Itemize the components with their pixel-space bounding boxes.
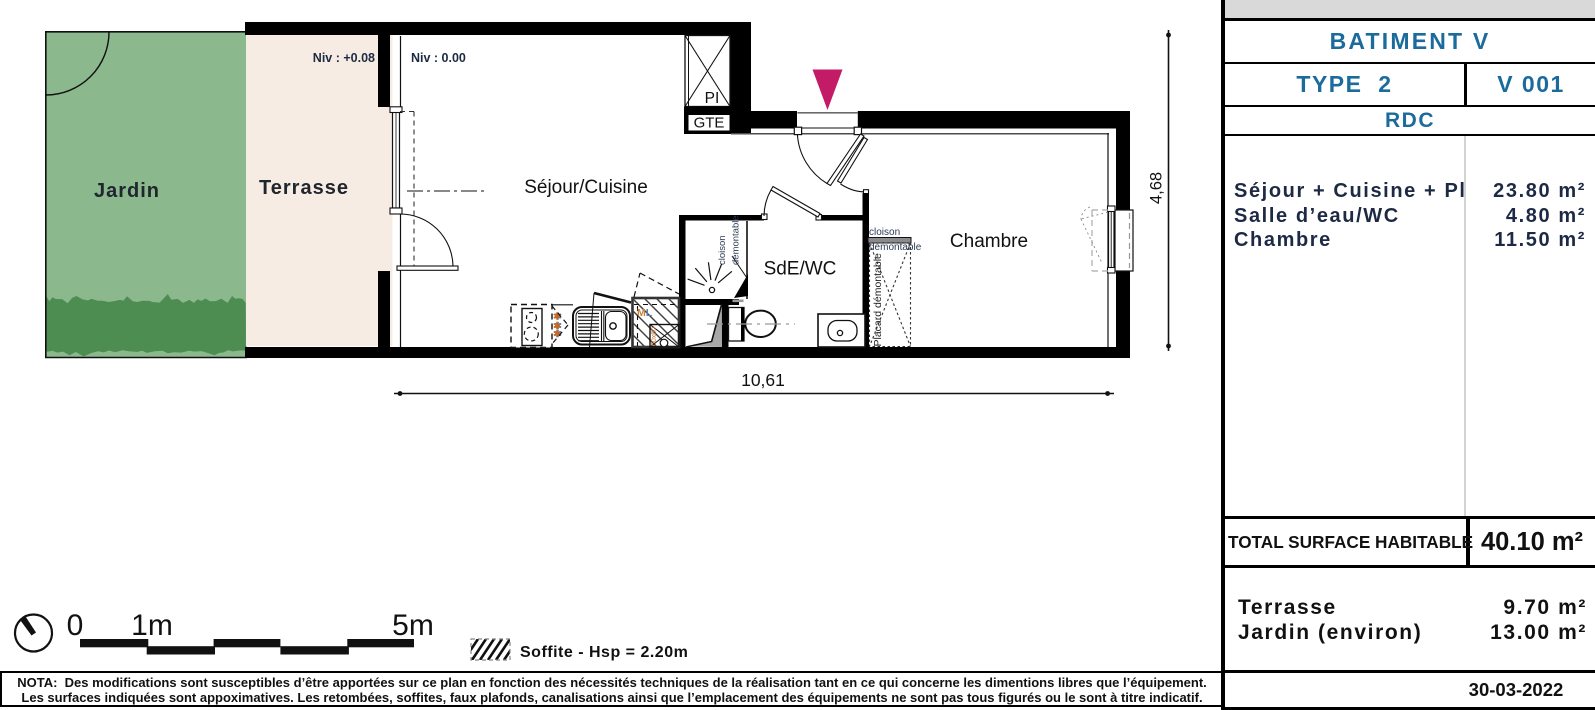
svg-text:4,68: 4,68 — [1148, 172, 1166, 204]
svg-text:Séjour/Cuisine: Séjour/Cuisine — [524, 177, 648, 198]
svg-text:SdE/WC: SdE/WC — [764, 259, 837, 280]
svg-text:Chambre: Chambre — [950, 231, 1028, 252]
svg-text:cloison: cloison — [869, 227, 900, 238]
svg-text:0: 0 — [67, 609, 84, 642]
svg-text:ML: ML — [637, 307, 653, 319]
svg-text:Placard démontable: Placard démontable — [872, 253, 884, 347]
svg-text:démontable: démontable — [869, 242, 922, 253]
svg-text:Soffite - Hsp = 2.20m: Soffite - Hsp = 2.20m — [520, 644, 688, 661]
svg-text:PI: PI — [705, 90, 720, 107]
svg-text:10,61: 10,61 — [741, 370, 785, 390]
svg-text:60x60: 60x60 — [651, 327, 658, 346]
svg-text:Niv : +0.08: Niv : +0.08 — [313, 51, 375, 65]
svg-text:1m: 1m — [131, 609, 173, 642]
svg-text:Jardin: Jardin — [94, 180, 160, 202]
svg-text:5m: 5m — [392, 609, 434, 642]
svg-text:démontable: démontable — [731, 215, 742, 265]
svg-text:cloison: cloison — [717, 235, 728, 265]
svg-text:Niv : 0.00: Niv : 0.00 — [411, 51, 466, 65]
svg-text:Terrasse: Terrasse — [259, 177, 349, 199]
svg-text:GTE: GTE — [694, 115, 725, 132]
